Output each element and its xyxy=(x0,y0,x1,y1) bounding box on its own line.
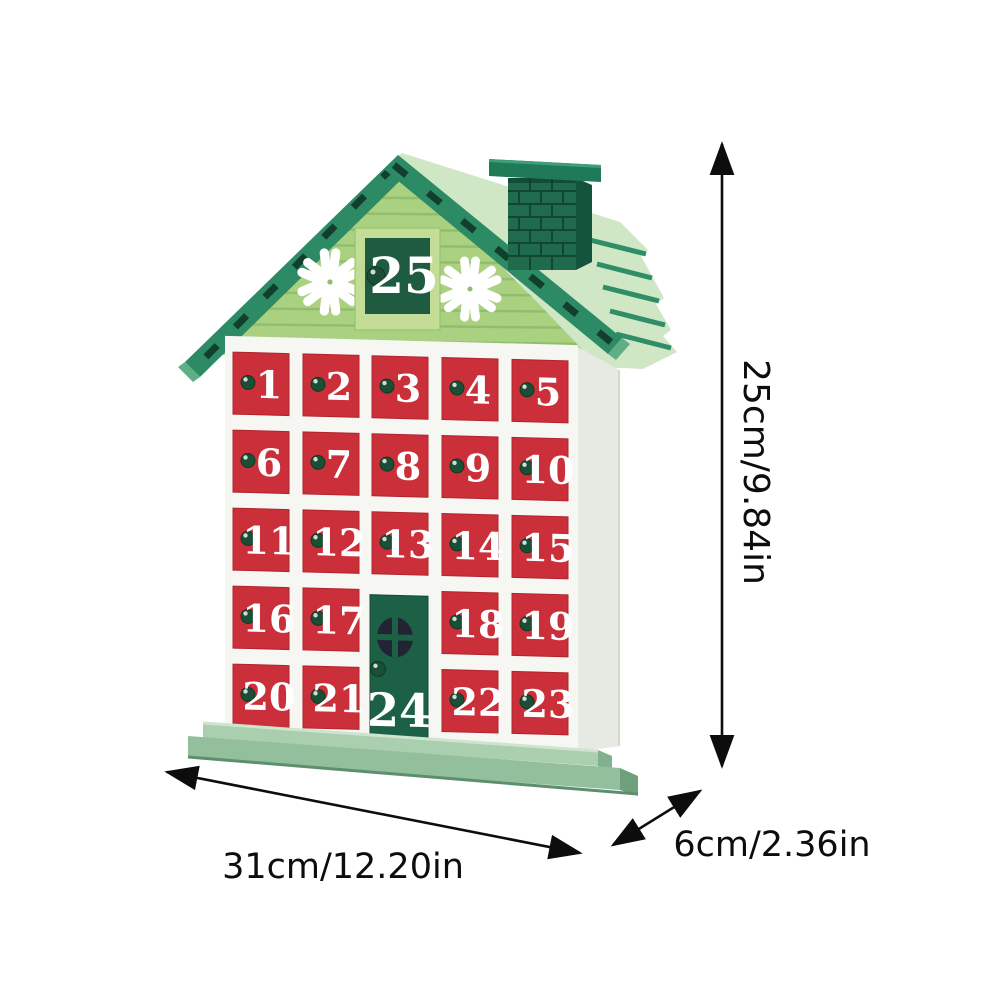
drawer-number: 12 xyxy=(313,519,366,565)
height-dimension-label: 25cm/9.84in xyxy=(735,359,776,585)
window-number: 25 xyxy=(369,246,439,305)
drawer: 10 xyxy=(512,437,574,501)
drawer-number: 10 xyxy=(522,447,575,493)
drawer-number: 23 xyxy=(522,681,575,727)
width-dimension: 31cm/12.20in xyxy=(167,772,580,887)
drawer: 15 xyxy=(512,515,574,579)
width-dimension-label: 31cm/12.20in xyxy=(222,847,464,887)
drawer: 8 xyxy=(372,434,428,497)
door: 24 xyxy=(367,595,431,750)
drawer-number: 20 xyxy=(243,673,296,719)
drawer-number: 9 xyxy=(465,445,491,491)
drawer-number: 19 xyxy=(522,603,575,649)
drawer: 17 xyxy=(303,588,365,652)
drawer: 3 xyxy=(372,356,428,419)
door-knob xyxy=(371,661,386,676)
height-dimension: 25cm/9.84in xyxy=(722,144,776,766)
drawer-number: 3 xyxy=(395,365,421,411)
drawer-number: 13 xyxy=(382,521,435,567)
chimney-side-face xyxy=(576,178,592,270)
drawer: 21 xyxy=(303,666,365,730)
drawer-number: 17 xyxy=(313,597,366,643)
drawer: 14 xyxy=(442,514,504,578)
drawer-number: 11 xyxy=(243,517,296,563)
drawer: 2 xyxy=(303,354,359,417)
drawer-number: 14 xyxy=(452,523,505,569)
drawer-number: 18 xyxy=(452,601,505,647)
drawer: 13 xyxy=(372,512,434,576)
drawer: 4 xyxy=(442,358,498,421)
depth-dimension: 6cm/2.36in xyxy=(613,791,871,865)
drawer: 11 xyxy=(233,508,295,572)
drawer: 19 xyxy=(512,593,574,657)
drawer-number: 7 xyxy=(326,442,352,488)
drawer: 5 xyxy=(512,359,568,422)
drawer-number: 21 xyxy=(313,675,366,721)
roof-window: 25 xyxy=(355,228,440,330)
drawer: 18 xyxy=(442,592,504,656)
drawer: 12 xyxy=(303,510,365,574)
drawer-number: 6 xyxy=(256,440,282,486)
door-number: 24 xyxy=(367,683,431,739)
product-image: 25 1 2 3 4 5 6 7 8 9 10 11 12 13 14 15 1… xyxy=(0,0,1001,1001)
drawer-number: 5 xyxy=(535,369,561,415)
drawer-number: 16 xyxy=(243,595,296,641)
drawer: 7 xyxy=(303,432,359,495)
depth-dimension-label: 6cm/2.36in xyxy=(673,825,870,865)
house-body: 1 2 3 4 5 6 7 8 9 10 11 12 13 14 15 16 1… xyxy=(225,336,620,756)
drawer: 22 xyxy=(442,670,504,734)
drawer: 1 xyxy=(233,352,289,415)
drawer-number: 22 xyxy=(452,679,505,725)
drawer: 6 xyxy=(233,430,289,493)
drawer-number: 4 xyxy=(465,367,491,413)
drawer: 16 xyxy=(233,586,295,650)
drawer-number: 15 xyxy=(522,525,575,571)
drawer: 9 xyxy=(442,436,498,499)
drawer-number: 8 xyxy=(395,443,421,489)
drawer: 23 xyxy=(512,671,574,735)
drawer: 20 xyxy=(233,664,295,728)
drawer-number: 2 xyxy=(326,364,352,410)
drawer-number: 1 xyxy=(256,362,282,408)
side-wall xyxy=(578,347,620,752)
